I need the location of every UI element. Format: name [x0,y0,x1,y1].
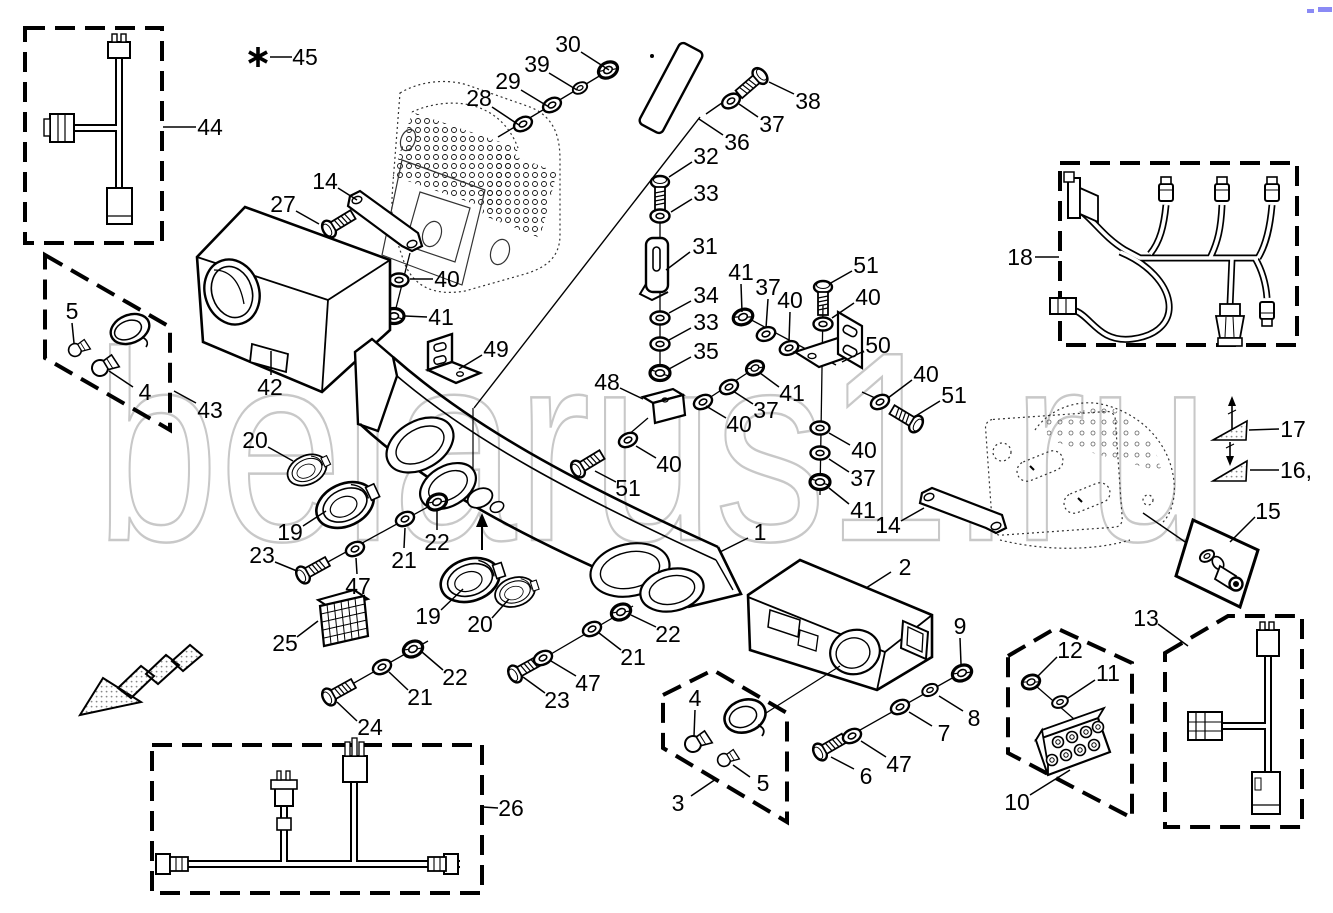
leader-line [939,696,963,711]
leader-line [1230,517,1255,542]
leader-line [404,528,405,548]
part-label-40: 40 [855,284,881,310]
wedge-17 [1213,396,1247,440]
leader-line [960,638,961,664]
part-label-47: 47 [575,670,601,696]
part-label-28: 28 [466,85,492,111]
leader-line [422,652,443,670]
part-label-51: 51 [941,382,967,408]
part-label-47: 47 [345,573,371,599]
cursor-artifact-icon [1307,7,1332,13]
hood-panel-ghost [382,82,560,293]
part-label-27: 27 [270,191,296,217]
part-label-16: 16, [1280,457,1312,483]
leader-line [831,757,854,769]
part-label-36: 36 [724,129,750,155]
part-label-20: 20 [242,427,268,453]
parts-diagram-page: belarus1.ru [0,0,1333,913]
wedge-16 [1213,442,1247,481]
part-label-9: 9 [954,613,967,639]
part-label-2: 2 [899,554,912,580]
part-label-20: 20 [467,611,493,637]
part-label-19: 19 [415,603,441,629]
part-label-43: 43 [197,397,223,423]
leader-line [1158,624,1188,646]
part-label-33: 33 [693,180,719,206]
leader-line [769,82,794,94]
part-label-5: 5 [66,298,79,324]
part-label-40: 40 [656,451,682,477]
part-label-45: 45 [292,44,318,70]
part-label-37: 37 [850,465,876,491]
leader-line [389,672,408,690]
part-label-21: 21 [620,644,646,670]
part-label-41: 41 [728,259,754,285]
part-label-49: 49 [483,336,509,362]
part-label-3: 3 [672,790,685,816]
leader-line [297,621,318,637]
leader-line [296,211,319,224]
direction-arrow-icon [80,645,202,715]
group-box-13 [1165,616,1302,827]
leader-line [405,316,427,317]
part-label-38: 38 [795,88,821,114]
part-label-22: 22 [655,621,681,647]
part-label-21: 21 [391,547,417,573]
part-label-21: 21 [407,684,433,710]
part-label-12: 12 [1057,637,1083,663]
part-label-1: 1 [754,519,767,545]
part-label-30: 30 [555,31,581,57]
leader-line [699,119,723,135]
part-label-25: 25 [272,630,298,656]
part-label-7: 7 [938,720,951,746]
exploded-parts-diagram: belarus1.ru [0,0,1333,913]
part-label-6: 6 [860,763,873,789]
leader-line [733,765,750,777]
part-label-14: 14 [875,512,901,538]
part-label-40: 40 [726,411,752,437]
part-label-31: 31 [692,233,718,259]
part-label-23: 23 [249,542,275,568]
cable-harness-44 [44,34,132,224]
part-label-41: 41 [428,304,454,330]
part-label-40: 40 [913,361,939,387]
cable-harness-13 [1188,622,1280,814]
leader-line [356,558,357,574]
leader-line [551,661,576,676]
leader-line [1068,680,1095,698]
leader-line [691,779,716,796]
part-label-44: 44 [197,114,223,140]
leader-line [523,677,545,693]
part-label-11: 11 [1096,660,1120,686]
terminal-block-10 [1020,673,1110,775]
leader-line [789,312,790,342]
leader-line [549,73,577,90]
part-label-8: 8 [968,705,981,731]
leader-line [669,162,692,177]
part-label-35: 35 [693,338,719,364]
part-label-37: 37 [759,111,785,137]
part-label-13: 13 [1133,605,1159,631]
leader-line [671,199,692,212]
part-label-23: 23 [544,687,570,713]
part-label-10: 10 [1004,789,1030,815]
part-label-33: 33 [693,309,719,335]
part-label-42: 42 [257,374,283,400]
part-label-4: 4 [139,379,152,405]
part-label-17: 17 [1280,416,1306,442]
part-label-48: 48 [594,369,620,395]
part-label-41: 41 [779,380,805,406]
part-label-40: 40 [851,437,877,463]
leader-line [72,323,74,343]
leader-line [492,107,519,125]
part-label-37: 37 [753,397,779,423]
leader-line [861,741,886,757]
leader-line [483,807,498,808]
leader-line [581,52,609,70]
leader-line [741,284,742,312]
part-label-26: 26 [498,795,524,821]
part-label-4: 4 [689,685,702,711]
part-label-50: 50 [865,332,891,358]
part-label-18: 18 [1007,244,1033,270]
part-label-39: 39 [524,51,550,77]
part-label-41: 41 [850,497,876,523]
part-label-22: 22 [442,664,468,690]
part-label-51: 51 [853,252,879,278]
part-label-22: 22 [424,529,450,555]
leader-line [1038,657,1057,676]
leader-line [666,252,690,270]
part-label-29: 29 [495,68,521,94]
part-label-14: 14 [312,168,338,194]
part-label-24: 24 [357,714,383,740]
leader-line [599,633,621,650]
part-label-51: 51 [615,475,641,501]
part-label-19: 19 [277,519,303,545]
cable-harness-26 [156,738,460,874]
part-label-40: 40 [777,287,803,313]
leader-line [631,615,656,627]
part-label-32: 32 [693,143,719,169]
part-label-47: 47 [886,751,912,777]
leader-line [337,702,357,721]
leader-line [739,104,758,117]
leader-line [694,710,695,736]
part-label-5: 5 [757,770,770,796]
leader-line [829,271,852,284]
leader-line [909,712,932,726]
leader-line [521,90,549,107]
part-label-40: 40 [434,266,460,292]
asterisk-icon [249,47,267,67]
part-label-34: 34 [693,282,719,308]
leader-line [1249,429,1279,430]
cable-harness-18 [1050,172,1279,346]
part-label-15: 15 [1255,498,1281,524]
